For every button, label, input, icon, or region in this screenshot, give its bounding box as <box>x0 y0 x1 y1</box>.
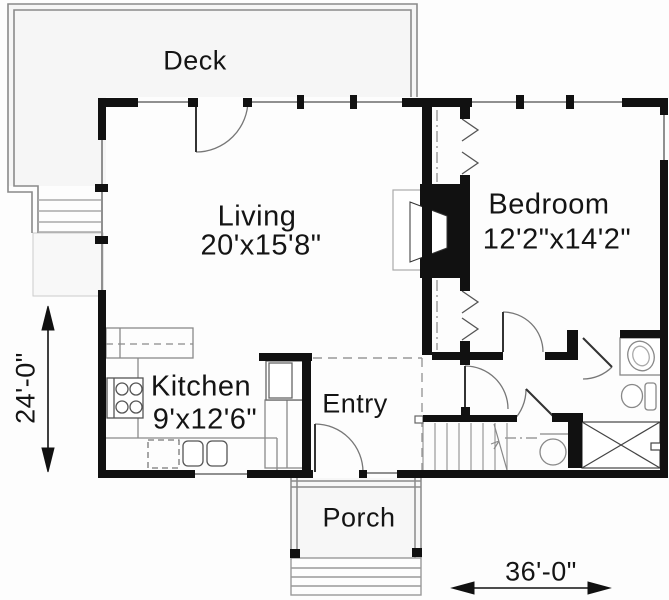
toilet <box>622 383 657 410</box>
dishwasher <box>148 440 179 468</box>
porch-label: Porch <box>322 503 395 534</box>
floor-plan: Deck Living 20'x15'8" Bedroom 12'2"x14'2… <box>0 0 669 600</box>
height-dimension-arrow <box>42 306 54 472</box>
deck-stairs <box>38 200 102 232</box>
porch-steps <box>291 558 421 595</box>
range <box>107 378 143 418</box>
bedroom-dims-label: 12'2"x14'2" <box>483 224 631 257</box>
living-dims-label: 20'x15'8" <box>200 230 321 263</box>
refrigerator <box>266 361 304 400</box>
door-arcs <box>196 100 612 472</box>
kitchen-sink <box>183 441 227 466</box>
entry-label: Entry <box>322 389 388 420</box>
door-panels <box>196 100 612 472</box>
kitchen-dims-label: 9'x12'6" <box>153 404 257 437</box>
water-heater <box>540 434 568 465</box>
height-dimension-label: 24'-0" <box>11 352 42 424</box>
deck-label: Deck <box>163 46 227 77</box>
vanity-sink <box>620 337 662 375</box>
bedroom-label: Bedroom <box>488 189 609 222</box>
shower <box>582 422 661 468</box>
width-dimension-label: 36'-0" <box>505 557 577 588</box>
kitchen-label: Kitchen <box>151 371 251 404</box>
stairs <box>415 416 507 470</box>
